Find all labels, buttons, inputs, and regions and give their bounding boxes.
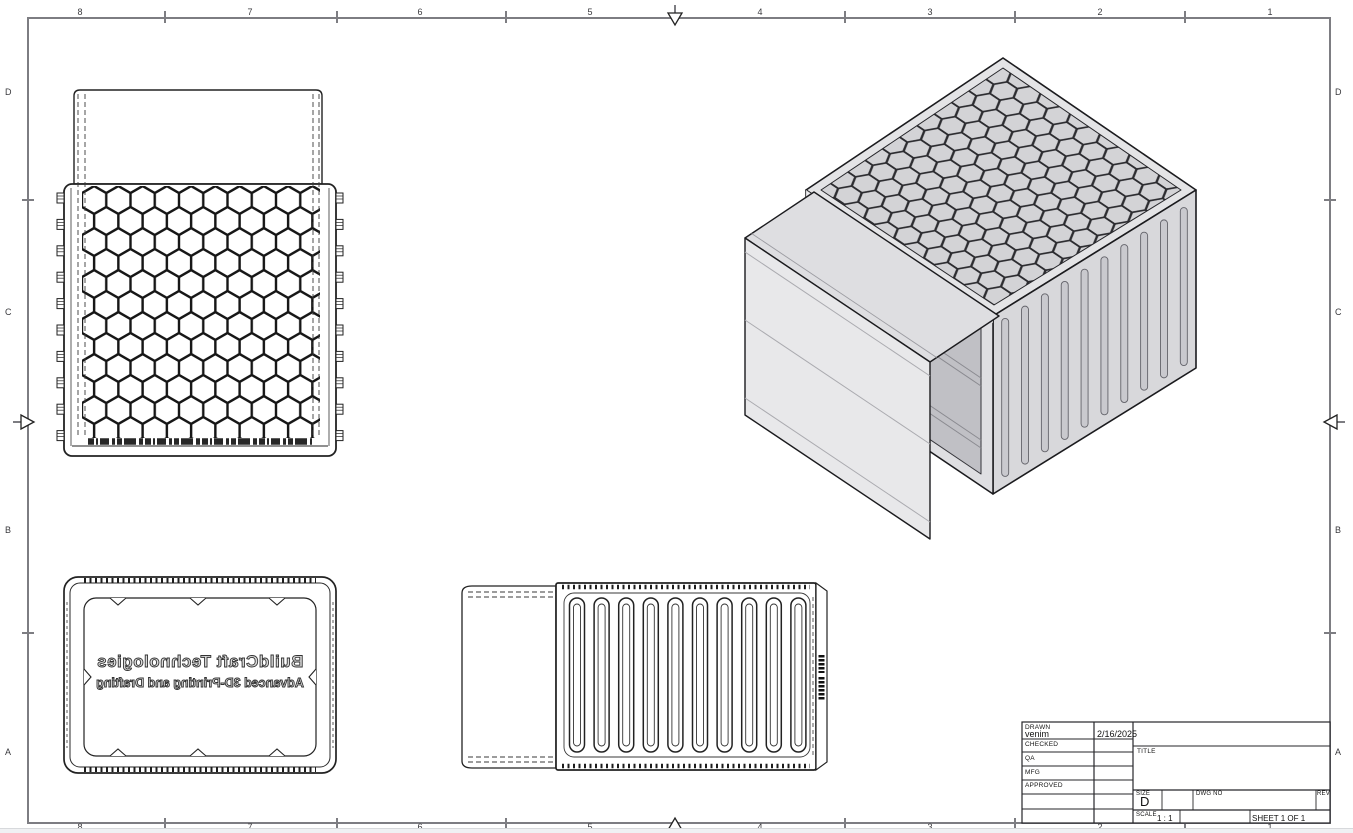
bottom-view-recessed-panel (84, 598, 316, 756)
side-view-right-chamfer (816, 583, 827, 770)
front-view[interactable] (57, 90, 343, 456)
front-view-honeycomb (82, 186, 320, 438)
bottom-view[interactable] (64, 577, 336, 773)
side-view-drawer-protrusion (462, 586, 556, 768)
front-view-lid-extension (74, 90, 322, 184)
drawing-sheet: 8765432187654321DCBADCBA DRAWN venim 2/1… (0, 0, 1353, 833)
drawing-canvas (0, 0, 1353, 833)
isometric-view[interactable] (745, 58, 1196, 539)
app-edge-strip (0, 828, 1353, 833)
title-block-grid (1022, 722, 1330, 823)
side-view[interactable] (462, 583, 827, 770)
